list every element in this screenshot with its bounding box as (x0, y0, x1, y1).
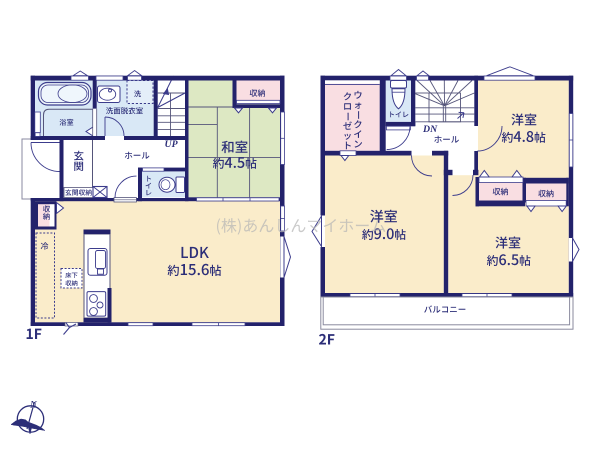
svg-text:DN: DN (422, 124, 438, 135)
svg-text:N: N (29, 400, 38, 411)
svg-text:UP: UP (165, 139, 179, 150)
